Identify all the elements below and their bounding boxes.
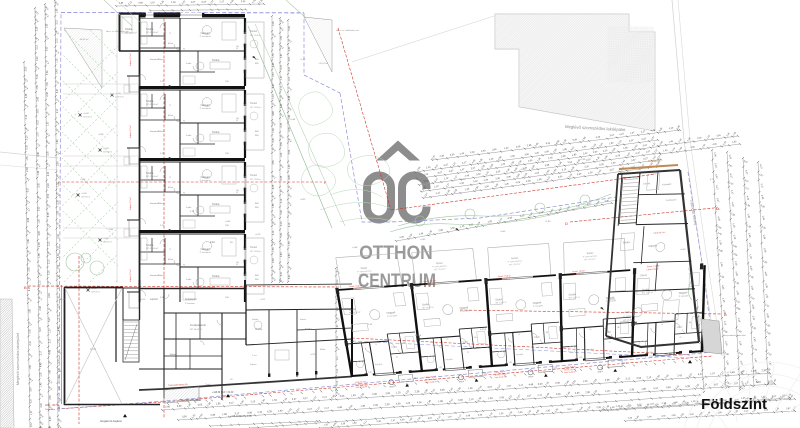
svg-text:3,50: 3,50 [273,159,275,164]
svg-text:75: 75 [169,33,171,35]
svg-text:Fürdő: Fürdő [186,63,192,65]
svg-text:2,38: 2,38 [210,414,215,417]
svg-text:3,50: 3,50 [396,402,401,405]
svg-text:90: 90 [679,337,681,339]
svg-text:1499,57/1: 1499,57/1 [83,117,93,119]
svg-text:2,17: 2,17 [537,394,542,397]
svg-text:1,07: 1,07 [507,385,512,388]
svg-text:Szoba: Szoba [623,241,631,244]
svg-text:3,67: 3,67 [31,386,33,391]
svg-text:3,67: 3,67 [487,386,492,389]
svg-text:2,30: 2,30 [575,392,580,395]
svg-text:1,49: 1,49 [360,405,365,408]
svg-text:4,48: 4,48 [38,151,40,156]
svg-text:1,85: 1,85 [225,153,229,155]
svg-text:2,38: 2,38 [39,242,41,247]
svg-text:Terasz: Terasz [586,252,594,256]
svg-text:P: lam.parki: P: lam.parki [200,108,211,110]
svg-text:WT: 10,55 m²: WT: 10,55 m² [125,32,137,35]
svg-text:1499,57/1: 1499,57/1 [91,292,101,294]
svg-text:1,50: 1,50 [488,397,493,400]
svg-text:2,30: 2,30 [289,126,291,131]
svg-text:1,85: 1,85 [222,413,227,416]
svg-text:Hrsz.: 817/9: Hrsz.: 817/9 [45,403,60,407]
svg-text:5,39: 5,39 [281,232,283,237]
svg-text:Szoba: Szoba [569,293,577,297]
svg-text:1,07: 1,07 [31,410,33,415]
svg-text:OTTHON: OTTHON [359,242,433,264]
svg-text:1,85: 1,85 [438,400,443,403]
svg-text:18,02: 18,02 [90,348,97,351]
svg-text:Előtér: Előtér [170,353,176,356]
svg-text:0,90: 0,90 [440,389,445,392]
svg-text:2,90: 2,90 [385,403,390,406]
svg-text:D: D [565,221,568,226]
svg-text:P: lam.parki: P: lam.parki [200,36,211,38]
svg-text:2,90: 2,90 [165,405,170,408]
svg-text:1,85: 1,85 [641,388,646,391]
svg-text:1,07: 1,07 [710,372,715,375]
svg-text:3,50: 3,50 [48,193,50,198]
svg-text:75: 75 [169,177,171,179]
svg-text:Konyha/Étkező: Konyha/Étkező [150,202,165,205]
svg-text:1,07: 1,07 [527,394,532,397]
svg-text:75: 75 [169,249,171,251]
svg-text:Földszint: Földszint [701,396,767,413]
svg-text:Terasz: Terasz [511,257,519,261]
svg-text:2,10: 2,10 [40,280,42,285]
svg-text:1,50: 1,50 [272,399,277,402]
svg-text:2,10: 2,10 [281,221,283,226]
svg-text:3,30: 3,30 [48,151,50,156]
svg-text:Lépcső: Lépcső [150,298,158,301]
svg-text:Szoba: Szoba [422,303,430,307]
svg-text:2,43: 2,43 [160,297,164,299]
svg-text:+4,48: +4,48 [640,149,646,151]
svg-text:+0,48: +0,48 [103,238,109,240]
svg-text:+0,65: +0,65 [225,221,231,223]
svg-text:+4,05: +4,05 [500,231,506,233]
svg-text:2,43: 2,43 [57,69,59,74]
svg-text:+0,75: +0,75 [140,299,146,301]
svg-text:5,39: 5,39 [289,25,291,30]
svg-text:Szoba: Szoba [495,298,503,302]
svg-text:+0,90: +0,90 [680,249,686,251]
svg-text:6,27: 6,27 [31,398,33,403]
svg-text:Tereplépcső: Tereplépcső [648,160,661,163]
svg-text:2,17: 2,17 [281,85,283,90]
svg-text:3,67: 3,67 [292,398,297,401]
svg-text:0,90: 0,90 [666,386,671,389]
svg-text:2,30: 2,30 [48,171,50,176]
svg-text:1,85: 1,85 [39,253,41,258]
svg-text:1,49: 1,49 [50,369,52,374]
svg-text:006 A: 006 A [598,370,604,373]
svg-text:1,50: 1,50 [273,53,275,58]
svg-text:6,27: 6,27 [27,187,29,192]
svg-text:P: kerámia: P: kerámia [185,303,195,305]
svg-text:Szoba: Szoba [348,308,356,312]
svg-text:1,49: 1,49 [28,238,30,243]
svg-text:2,90: 2,90 [585,391,590,394]
svg-text:90: 90 [236,48,238,50]
svg-text:Meglévő szomszédos lakóépület: Meglévő szomszédos lakóépület [16,333,20,385]
svg-text:+0,71: +0,71 [260,299,266,301]
svg-text:1,85: 1,85 [649,352,652,354]
svg-text:90: 90 [236,192,238,194]
svg-text:6,27: 6,27 [49,317,51,322]
svg-text:Előtér: Előtér [168,186,174,189]
svg-text:3,12: 3,12 [26,114,28,119]
svg-text:1,20: 1,20 [289,164,291,169]
svg-text:1,49: 1,49 [38,170,40,175]
svg-text:B: B [724,312,727,317]
svg-text:Hrsz. sz. telekhatár sáv: Hrsz. sz. telekhatár sáv [336,29,360,32]
svg-text:1,50: 1,50 [278,409,283,412]
svg-text:90: 90 [467,352,469,354]
svg-text:+0,70: +0,70 [255,234,261,236]
svg-text:2,38: 2,38 [415,390,420,393]
svg-text:3,67: 3,67 [191,2,196,4]
svg-text:0,90: 0,90 [636,377,641,380]
svg-text:2,10: 2,10 [30,340,32,345]
svg-text:WT: 12,05 m²: WT: 12,05 m² [146,247,158,250]
svg-text:1,07: 1,07 [289,76,291,81]
svg-text:90: 90 [609,342,611,344]
svg-text:Szoba: Szoba [146,27,154,31]
svg-text:Terasz: Terasz [250,30,258,33]
svg-text:Konyha/Étkező: Konyha/Étkező [150,130,165,133]
svg-text:2,38: 2,38 [605,379,610,382]
svg-text:3,50: 3,50 [29,266,31,271]
svg-text:+0,75: +0,75 [610,299,616,301]
svg-text:Nappali: Nappali [679,291,688,295]
svg-text:1,07: 1,07 [273,94,275,99]
svg-text:2,17: 2,17 [49,338,51,343]
svg-text:90: 90 [183,193,185,195]
svg-text:1,50: 1,50 [47,81,49,86]
svg-text:Nappali: Nappali [386,311,395,315]
svg-text:1,85: 1,85 [29,308,31,313]
svg-text:+0,48: +0,48 [103,148,109,150]
svg-text:75: 75 [375,344,377,346]
svg-text:3,50: 3,50 [289,149,291,154]
svg-text:4,05: 4,05 [48,212,50,217]
svg-text:3,12: 3,12 [229,401,234,404]
svg-text:1,49: 1,49 [351,394,356,397]
svg-text:Nappali: Nappali [201,31,210,35]
svg-text:0,37 A: 0,37 A [415,334,422,337]
svg-text:Fürdő: Fürdő [186,279,192,281]
svg-text:2,30: 2,30 [281,122,283,127]
svg-text:1,85: 1,85 [46,23,48,28]
svg-text:3,30: 3,30 [340,395,345,398]
svg-text:Nappali: Nappali [201,247,210,251]
svg-text:3,12: 3,12 [56,19,58,24]
svg-text:75: 75 [446,339,448,341]
svg-text:+3,50: +3,50 [520,169,526,171]
svg-text:1,85: 1,85 [439,367,443,369]
svg-text:1,49: 1,49 [41,382,43,387]
svg-text:3,30: 3,30 [241,1,246,3]
svg-text:2,10: 2,10 [469,398,474,401]
svg-text:Kamra: Kamra [250,363,257,366]
svg-text:+1,27: +1,27 [300,59,306,61]
svg-text:1499,57/1: 1499,57/1 [115,97,125,99]
svg-text:4,05: 4,05 [273,184,275,189]
svg-text:0,90: 0,90 [37,56,39,61]
svg-text:4,05: 4,05 [29,286,31,291]
svg-text:240: 240 [236,262,239,264]
svg-text:2,43: 2,43 [273,62,275,67]
svg-text:3,12: 3,12 [37,45,39,50]
svg-text:Kukatároló: Kukatároló [185,298,197,301]
svg-text:6,27: 6,27 [57,88,59,93]
svg-text:Nappali: Nappali [648,244,657,248]
svg-text:5,39: 5,39 [49,270,51,275]
svg-text:30,02 m²: 30,02 m² [80,38,89,41]
svg-text:P: ker: P: ker [252,354,257,357]
svg-text:Étkező: Étkező [640,274,648,277]
svg-text:Szoba: Szoba [125,27,133,31]
svg-text:Nappali: Nappali [201,103,210,107]
svg-text:1,85: 1,85 [58,210,60,215]
svg-text:1,85: 1,85 [273,203,275,208]
svg-text:90: 90 [396,357,398,359]
svg-text:1,50: 1,50 [281,35,283,40]
svg-text:4,48: 4,48 [40,362,42,367]
svg-text:3,50: 3,50 [50,395,52,400]
svg-text:4,48: 4,48 [730,371,735,374]
svg-text:+0,43: +0,43 [420,239,426,241]
svg-text:Kerékpártároló: Kerékpártároló [190,324,206,327]
svg-text:WT: 12,08 m²: WT: 12,08 m² [250,106,262,109]
svg-text:1,85: 1,85 [368,372,372,374]
svg-text:WT: 12,05 m²: WT: 12,05 m² [146,103,158,106]
svg-text:+0,64: +0,64 [290,119,296,121]
svg-text:Lakás 2,3 m²: Lakás 2,3 m² [129,197,132,210]
svg-text:90: 90 [689,322,691,324]
svg-text:3,12: 3,12 [281,198,283,203]
svg-text:Konyha/Étkező: Konyha/Étkező [150,58,165,61]
svg-text:2,30: 2,30 [38,182,40,187]
svg-text:2,43: 2,43 [281,252,283,257]
svg-text:2,90: 2,90 [372,393,377,396]
svg-text:Terasz: Terasz [250,246,258,249]
svg-text:0,90: 0,90 [458,399,463,402]
svg-text:3,30: 3,30 [538,383,543,386]
svg-text:2,17: 2,17 [40,350,42,355]
svg-text:75: 75 [661,324,663,326]
svg-text:90: 90 [183,49,185,51]
svg-text:1,50: 1,50 [57,58,59,63]
svg-text:1,07: 1,07 [281,75,283,80]
svg-text:Szoba: Szoba [212,58,220,62]
svg-text:2,10: 2,10 [289,222,291,227]
svg-text:75: 75 [589,329,591,331]
svg-text:3,67: 3,67 [281,53,283,58]
svg-text:+1,85: +1,85 [545,221,551,223]
svg-text:Fürdő: Fürdő [677,326,683,329]
svg-text:Nappali: Nappali [533,301,542,305]
svg-text:1,85: 1,85 [216,402,221,405]
svg-text:2,10: 2,10 [150,2,155,4]
svg-text:4,05: 4,05 [197,403,202,406]
svg-text:Lakás: Lakás [624,311,631,314]
svg-text:~32,07 m²: ~32,07 m² [318,62,328,65]
svg-text:+2,38: +2,38 [580,159,586,161]
svg-text:3,50: 3,50 [25,66,27,71]
svg-text:3,12: 3,12 [653,387,658,390]
svg-text:3,50: 3,50 [39,206,41,211]
svg-text:2,17: 2,17 [31,422,33,427]
svg-text:2,30: 2,30 [273,137,275,142]
svg-text:WT: 12,05 m²: WT: 12,05 m² [146,175,158,178]
svg-text:5,39: 5,39 [37,74,39,79]
svg-text:2,43: 2,43 [40,305,42,310]
svg-text:2,43: 2,43 [499,396,504,399]
svg-text:WT: 12,08 m²: WT: 12,08 m² [250,250,262,253]
svg-text:1499,57/1: 1499,57/1 [103,152,113,154]
svg-text:90: 90 [183,265,185,267]
svg-text:0,37 B: 0,37 B [480,329,487,331]
svg-text:Nappali: Nappali [201,175,210,179]
svg-text:2,17: 2,17 [220,1,225,3]
svg-text:240: 240 [236,190,239,192]
svg-text:90: 90 [546,332,548,334]
svg-text:2,38: 2,38 [281,175,283,180]
svg-text:6,27: 6,27 [40,326,42,331]
svg-text:Szoba: Szoba [146,99,154,103]
svg-text:2,38: 2,38 [37,26,39,31]
svg-text:2,43: 2,43 [160,153,164,155]
svg-text:14,45: 14,45 [60,299,66,301]
svg-text:Előtér: Előtér [168,258,174,261]
svg-text:1,50: 1,50 [37,84,39,89]
svg-text:240: 240 [236,118,239,120]
svg-text:+0,44: +0,44 [108,229,114,231]
svg-text:Terasz: Terasz [360,267,368,271]
svg-text:90: 90 [538,347,540,349]
svg-text:90: 90 [236,264,238,266]
svg-text:1,85: 1,85 [509,362,512,364]
svg-text:P: lam.parki: P: lam.parki [200,180,211,182]
svg-text:Terasz: Terasz [250,174,258,177]
svg-text:Gépjármű bejárat: Gépjármű bejárat [100,419,122,423]
svg-text:6,27: 6,27 [289,66,291,71]
svg-text:6,27: 6,27 [303,397,308,400]
svg-text:WT: 12,05 m²: WT: 12,05 m² [146,31,158,34]
svg-text:5,39: 5,39 [273,42,275,47]
svg-text:1,50: 1,50 [171,2,176,4]
svg-text:2,90: 2,90 [41,402,43,407]
svg-text:Szoba: Szoba [212,274,220,278]
svg-text:2,43: 2,43 [37,96,39,101]
svg-text:2,43: 2,43 [49,293,51,298]
svg-text:2,10: 2,10 [49,259,51,264]
svg-text:6,27: 6,27 [281,271,283,276]
svg-text:3,50: 3,50 [177,405,182,408]
svg-text:3,30: 3,30 [41,372,43,377]
svg-text:1,50: 1,50 [273,247,275,252]
svg-text:2,43: 2,43 [27,167,29,172]
svg-text:3,67: 3,67 [289,56,291,61]
svg-text:+118,39 Bmf = ±0,00: +118,39 Bmf = ±0,00 [212,392,234,394]
svg-text:Lakás 2,3 m²: Lakás 2,3 m² [129,125,132,138]
svg-text:3,50: 3,50 [182,415,187,418]
svg-text:75: 75 [518,334,520,336]
svg-text:2,43: 2,43 [677,374,682,377]
svg-text:2,17: 2,17 [57,108,59,113]
svg-text:2,10: 2,10 [250,400,255,403]
svg-text:1,50: 1,50 [289,241,291,246]
svg-text:2,10: 2,10 [646,376,651,379]
svg-text:4,05: 4,05 [289,174,291,179]
svg-text:Tároló: Tároló [205,384,212,386]
svg-text:4,48: 4,48 [289,95,291,100]
svg-text:P: lam.parki: P: lam.parki [200,252,211,254]
svg-text:90: 90 [236,120,238,122]
svg-text:5,39: 5,39 [27,144,29,149]
svg-text:WT: 12,08 m²: WT: 12,08 m² [250,178,262,181]
svg-text:Fürdő: Fürdő [186,207,192,209]
svg-text:3,50: 3,50 [281,141,283,146]
svg-text:B: B [24,285,27,290]
svg-text:2,10: 2,10 [57,38,59,43]
svg-text:2,43: 2,43 [160,81,164,83]
svg-text:0,90: 0,90 [47,46,49,51]
svg-text:2,17: 2,17 [518,384,523,387]
svg-text:1,85: 1,85 [225,225,229,227]
svg-text:4,48: 4,48 [28,217,30,222]
svg-text:90: 90 [474,337,476,339]
svg-text:+0,55: +0,55 [300,199,306,201]
svg-text:2,90: 2,90 [57,161,59,166]
svg-text:Előtér: Előtér [320,348,326,351]
svg-text:1,20: 1,20 [281,152,283,157]
svg-text:2,43: 2,43 [289,253,291,258]
svg-text:Fürdő: Fürdő [186,135,192,137]
svg-text:4,05: 4,05 [618,389,623,392]
svg-text:Szoba: Szoba [252,319,259,321]
svg-text:6,27: 6,27 [281,64,283,69]
svg-text:90: 90 [183,121,185,123]
svg-text:1,50: 1,50 [30,364,32,369]
svg-text:1,20: 1,20 [405,402,410,405]
svg-text:1,50: 1,50 [27,155,29,160]
svg-text:0,90: 0,90 [273,21,275,26]
svg-text:1,85: 1,85 [579,357,582,359]
svg-text:D: D [716,206,719,211]
svg-text:+0,75: +0,75 [310,354,316,356]
svg-text:2,17: 2,17 [322,396,327,399]
svg-text:2,12: 2,12 [210,241,215,244]
svg-text:1,20: 1,20 [39,218,41,223]
svg-text:3,12: 3,12 [49,241,51,246]
svg-text:1,07: 1,07 [49,328,51,333]
svg-text:Lakás 2,3 m²: Lakás 2,3 m² [129,53,132,66]
svg-text:Szoba: Szoba [305,328,312,331]
svg-text:Szoba: Szoba [146,243,154,247]
svg-text:Előtér: Előtér [168,42,174,45]
svg-text:Előtér: Előtér [168,114,174,117]
svg-text:Konyha/Étkező: Konyha/Étkező [150,274,165,277]
svg-text:2,38: 2,38 [629,388,634,391]
svg-text:6,27: 6,27 [202,2,207,4]
svg-text:Szoba: Szoba [212,202,220,206]
svg-text:4,48: 4,48 [528,383,533,386]
svg-text:+0,48: +0,48 [352,247,358,249]
